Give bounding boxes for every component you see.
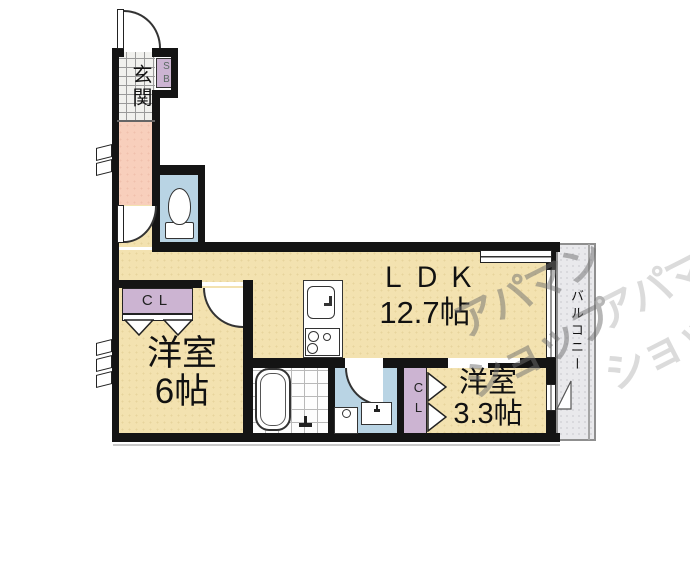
building-shadow-line xyxy=(113,444,560,446)
genkan-label: 玄関 xyxy=(126,64,150,126)
wall-outer-bottom xyxy=(112,433,560,442)
stove-burner-icon xyxy=(308,331,319,342)
hall-door-leaf xyxy=(117,205,124,243)
vent-window-icon xyxy=(96,159,112,176)
floor-plan-canvas: 玄関 SB CL CL ＬＤＫ 12.7帖 洋室 6帖 洋室 3.3帖 バルコニ… xyxy=(0,0,690,575)
entry-door-leaf xyxy=(117,9,124,49)
vent-window-icon xyxy=(96,355,112,372)
bedroom-small-size-label: 3.3帖 xyxy=(424,400,552,429)
hallway-floor xyxy=(117,122,155,207)
wall-toilet-right xyxy=(198,165,205,252)
bedroom-main-size-label: 6帖 xyxy=(119,374,245,409)
shower-drain-icon xyxy=(299,423,312,427)
stove-burner-icon xyxy=(323,333,331,341)
wall-bedroom-main-top xyxy=(112,280,202,288)
closet-main-label: CL xyxy=(122,293,193,308)
door-opening-washroom xyxy=(345,358,383,368)
wall-outer-left xyxy=(112,48,119,442)
toilet-bowl-icon xyxy=(168,188,191,225)
washing-machine-tap-icon xyxy=(342,409,351,418)
vanity-faucet-icon xyxy=(376,405,378,410)
vent-window-icon xyxy=(96,339,112,356)
vent-window-icon xyxy=(96,371,112,388)
wall-closet-divider xyxy=(397,366,404,442)
wall-genkan-top-left xyxy=(112,48,124,57)
stove-burner-icon xyxy=(307,343,318,354)
bedroom-main-name-label: 洋室 xyxy=(119,336,245,371)
shoe-box-label: SB xyxy=(159,61,171,87)
closet-small-label: CL xyxy=(407,380,425,428)
bathtub-icon xyxy=(255,368,291,431)
entry-door-arc-icon xyxy=(124,10,161,48)
bathtub-inner-line xyxy=(260,373,286,426)
